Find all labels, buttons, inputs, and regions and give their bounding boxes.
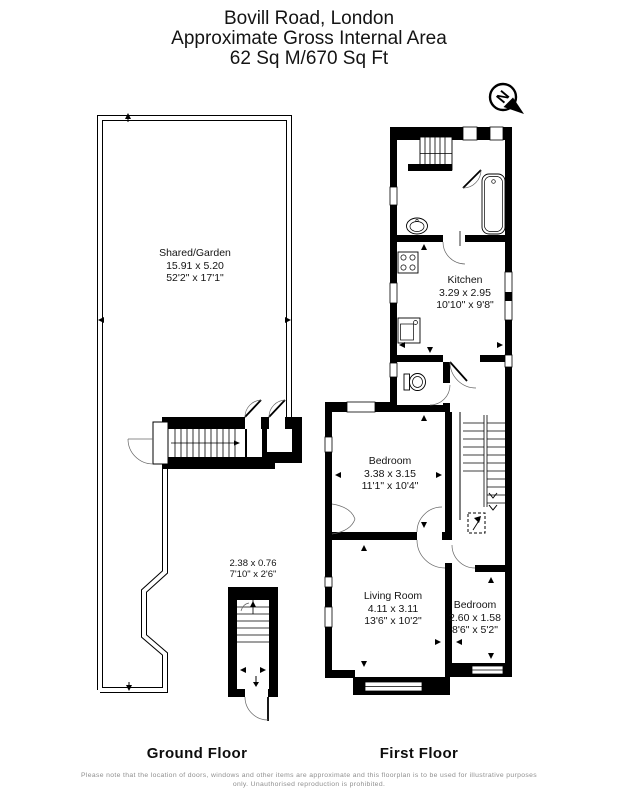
entrance-metric: 2.38 x 0.76 xyxy=(229,558,276,569)
living-room-label: Living Room 4.11 x 3.11 13'6" x 10'2" xyxy=(364,590,422,628)
entrance-imperial: 7'10" x 2'6" xyxy=(229,569,276,580)
garden-name: Shared/Garden xyxy=(159,247,231,260)
living-room-name: Living Room xyxy=(364,590,422,603)
bedroom2-metric: 2.60 x 1.58 xyxy=(449,612,501,625)
toilet-icon xyxy=(404,374,426,391)
living-room-imperial: 13'6" x 10'2" xyxy=(364,615,422,628)
bedroom1-imperial: 11'1" x 10'4" xyxy=(362,480,419,493)
kitchen-label: Kitchen 3.29 x 2.95 10'10" x 9'8" xyxy=(436,274,494,312)
garden-label: Shared/Garden 15.91 x 5.20 52'2" x 17'1" xyxy=(159,247,231,285)
page-title: Bovill Road, London xyxy=(0,9,618,29)
bedroom2-label: Bedroom 2.60 x 1.58 8'6" x 5'2" xyxy=(449,599,501,637)
upper-stairs xyxy=(408,137,452,171)
living-room-door xyxy=(417,540,445,568)
bedroom2-imperial: 8'6" x 5'2" xyxy=(449,624,501,637)
kitchen-metric: 3.29 x 2.95 xyxy=(436,287,494,300)
bedroom1-name: Bedroom xyxy=(362,455,419,468)
garden-external-stairs xyxy=(128,400,302,469)
kitchen-sink-icon xyxy=(398,318,420,343)
front-door xyxy=(245,697,268,721)
disclaimer-text: Please note that the location of doors, … xyxy=(73,771,545,789)
ground-floor-caption: Ground Floor xyxy=(147,745,248,762)
flat-entrance-door xyxy=(463,170,481,188)
bedroom1-label: Bedroom 3.38 x 3.15 11'1" x 10'4" xyxy=(362,455,419,493)
page-subtitle: Approximate Gross Internal Area xyxy=(0,29,618,49)
bedroom1-cupboard-doors xyxy=(332,504,355,534)
garden-imperial: 52'2" x 17'1" xyxy=(159,272,231,285)
kitchen-name: Kitchen xyxy=(436,274,494,287)
garden-metric: 15.91 x 5.20 xyxy=(159,260,231,273)
main-stairs xyxy=(460,412,505,533)
entrance-hall-structure xyxy=(228,587,278,721)
living-room-metric: 4.11 x 3.11 xyxy=(364,603,422,616)
kitchen-landing-door xyxy=(450,362,476,388)
bedroom2-door xyxy=(452,545,475,568)
bedroom1-door xyxy=(417,507,442,532)
first-floor-caption: First Floor xyxy=(380,745,459,762)
bedroom2-name: Bedroom xyxy=(449,599,501,612)
kitchen-imperial: 10'10" x 9'8" xyxy=(436,299,494,312)
floorplan-page: Bovill Road, London Approximate Gross In… xyxy=(0,0,618,800)
bathtub-icon xyxy=(482,174,505,234)
garden-door-1 xyxy=(245,400,261,417)
entrance-label: 2.38 x 0.76 7'10" x 2'6" xyxy=(229,558,276,580)
ground-floor-plan xyxy=(85,105,320,730)
title-block: Bovill Road, London Approximate Gross In… xyxy=(0,9,618,69)
garden-door-2 xyxy=(269,400,285,417)
garden-gate-door xyxy=(128,439,153,464)
page-area: 62 Sq M/670 Sq Ft xyxy=(0,49,618,69)
hob-icon xyxy=(398,252,418,273)
bathroom-sink-icon xyxy=(407,218,428,234)
bedroom1-metric: 3.38 x 3.15 xyxy=(362,468,419,481)
